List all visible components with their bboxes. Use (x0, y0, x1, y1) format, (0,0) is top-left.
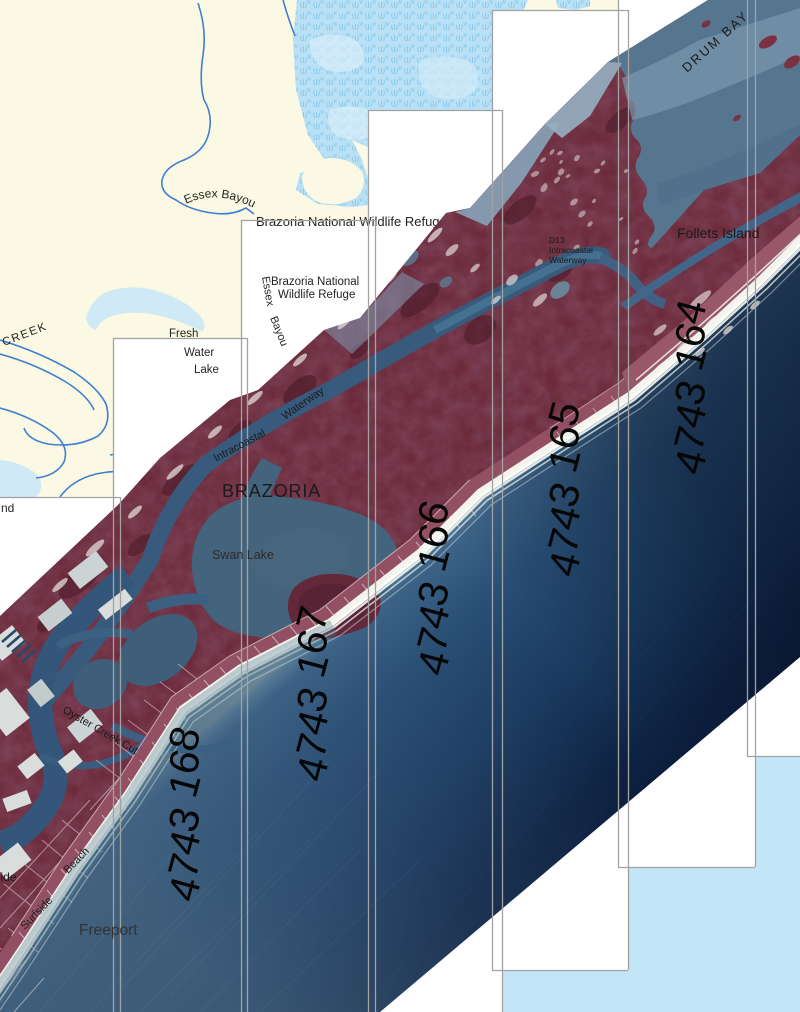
svg-text:BRAZORIA: BRAZORIA (222, 481, 321, 501)
svg-text:Brazoria National Wildlife Ref: Brazoria National Wildlife Refuge (256, 214, 447, 229)
svg-text:D13: D13 (549, 235, 565, 245)
svg-text:4743 168: 4743 168 (158, 721, 209, 906)
svg-text:Swan Lake: Swan Lake (212, 548, 274, 562)
svg-text:4743 167: 4743 167 (286, 601, 337, 786)
svg-text:Lake: Lake (194, 364, 219, 376)
svg-text:Wildlife Refuge: Wildlife Refuge (278, 289, 355, 301)
svg-text:Water: Water (184, 347, 214, 359)
svg-text:4743 165: 4743 165 (538, 396, 589, 581)
svg-text:Freeport: Freeport (79, 922, 138, 939)
svg-text:Waterway: Waterway (549, 255, 587, 265)
svg-text:Follets Island: Follets Island (677, 225, 759, 241)
svg-text:4743 164: 4743 164 (664, 294, 715, 479)
svg-text:Brazoria National: Brazoria National (271, 276, 359, 288)
svg-text:nd: nd (1, 501, 14, 515)
svg-text:Intracoastal: Intracoastal (549, 245, 593, 255)
svg-text:side: side (0, 870, 17, 884)
svg-text:4743 166: 4743 166 (407, 495, 458, 680)
